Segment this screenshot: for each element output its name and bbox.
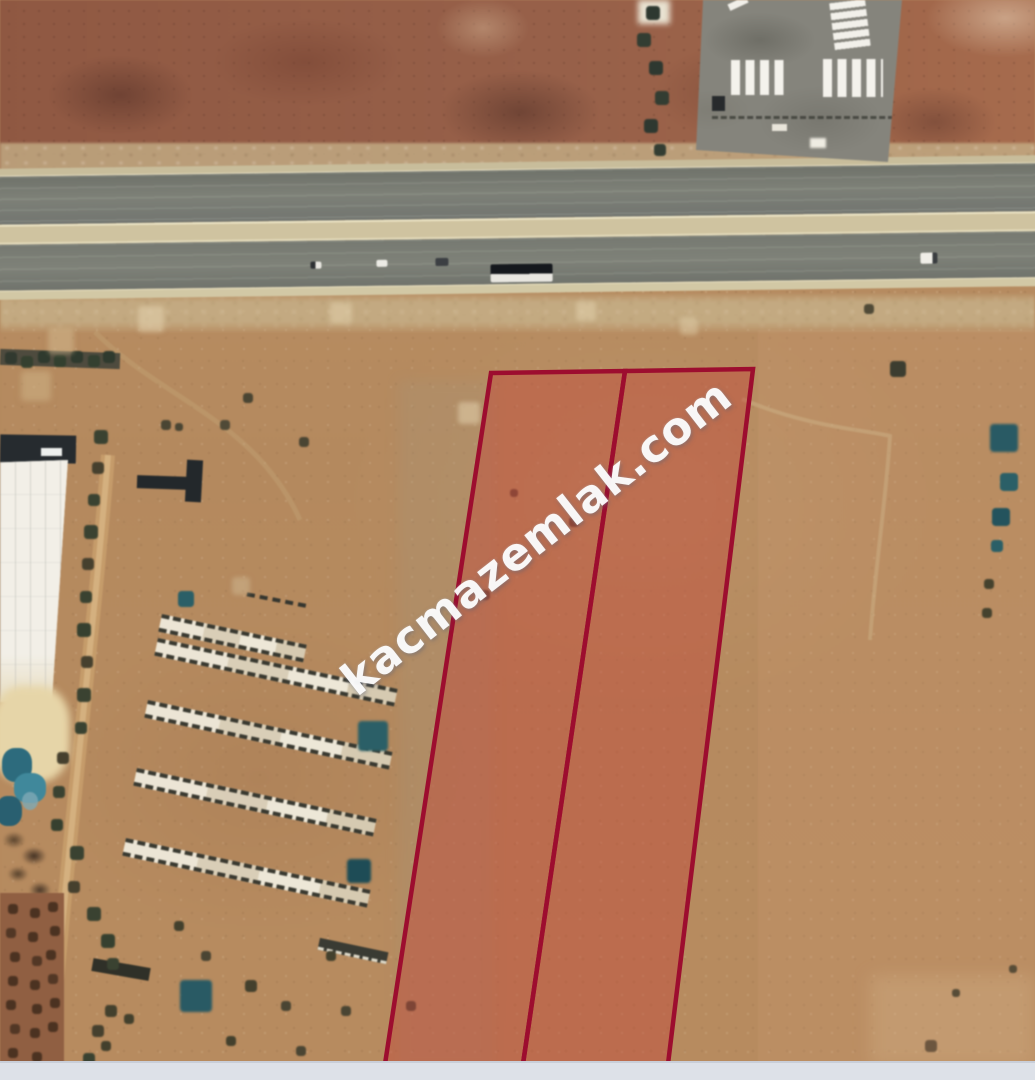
parked-truck-row <box>823 59 883 97</box>
pavement-marking <box>810 138 826 148</box>
parked-truck-stack <box>829 0 871 51</box>
parked-truck-row <box>731 60 786 95</box>
roof-skylight <box>41 448 62 456</box>
orchard-ground <box>0 893 64 1080</box>
water-tarp-highlight <box>22 792 38 810</box>
pavement-marking <box>727 0 748 11</box>
vehicle-van <box>920 253 937 264</box>
vehicle-car <box>435 258 448 266</box>
dark-roof-building <box>0 434 76 463</box>
light-ground-patch <box>638 0 670 24</box>
ruined-wall-post <box>185 460 203 503</box>
vehicle-car <box>376 260 387 267</box>
light-soil-patches <box>0 0 2 2</box>
bottom-bar <box>0 1061 1035 1080</box>
west-field-tint <box>398 380 493 1070</box>
bottom-right-light-ground <box>870 975 1035 1065</box>
east-field-tint <box>758 330 1035 1062</box>
lot-fence-line <box>712 116 894 119</box>
vehicle-car <box>310 262 321 269</box>
vehicle-bus <box>490 264 552 283</box>
satellite-map-screenshot: kacmazemlak.com <box>0 0 1035 1080</box>
ruined-wall <box>137 475 189 490</box>
lot-shed <box>712 96 725 111</box>
water-tarp <box>0 796 22 826</box>
highway <box>0 155 1035 302</box>
pavement-marking <box>772 124 787 131</box>
